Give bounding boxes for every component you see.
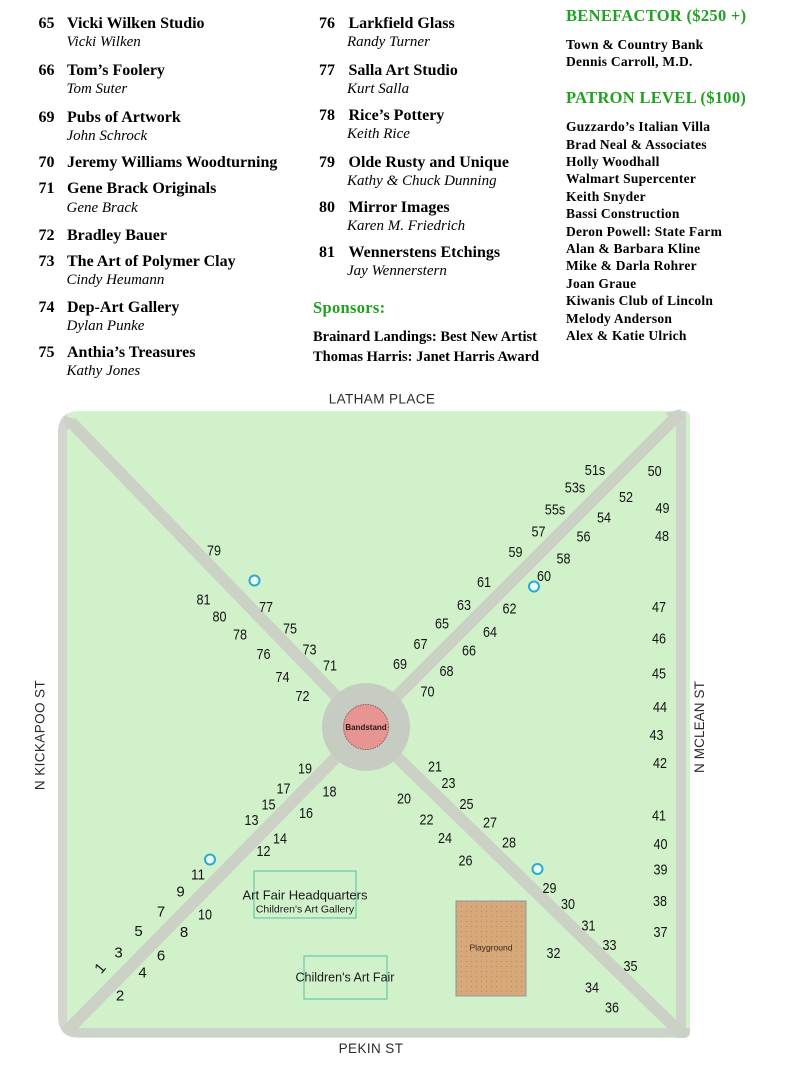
svg-text:51s: 51s xyxy=(585,462,606,479)
svg-text:21: 21 xyxy=(428,759,442,776)
svg-text:40: 40 xyxy=(654,836,668,853)
svg-text:12: 12 xyxy=(257,843,271,860)
svg-text:73: 73 xyxy=(303,642,317,659)
svg-text:49: 49 xyxy=(656,500,670,517)
svg-text:72: 72 xyxy=(296,688,310,705)
svg-text:6: 6 xyxy=(157,948,165,965)
svg-text:35: 35 xyxy=(624,958,638,975)
svg-text:22: 22 xyxy=(420,812,434,829)
svg-text:Bandstand: Bandstand xyxy=(345,723,386,732)
svg-text:53s: 53s xyxy=(565,480,586,497)
svg-text:38: 38 xyxy=(653,893,667,910)
svg-text:N KICKAPOO ST: N KICKAPOO ST xyxy=(33,680,48,790)
svg-text:9: 9 xyxy=(176,884,184,901)
svg-text:17: 17 xyxy=(277,781,291,798)
svg-text:28: 28 xyxy=(502,835,516,852)
svg-text:Art Fair Headquarters: Art Fair Headquarters xyxy=(243,888,368,903)
svg-text:55s: 55s xyxy=(545,502,566,519)
svg-text:79: 79 xyxy=(207,543,221,560)
svg-text:5: 5 xyxy=(134,923,142,940)
svg-text:36: 36 xyxy=(605,1000,619,1017)
svg-text:62: 62 xyxy=(503,601,517,618)
svg-text:43: 43 xyxy=(650,727,664,744)
svg-text:16: 16 xyxy=(299,805,313,822)
svg-text:24: 24 xyxy=(438,830,452,847)
svg-text:7: 7 xyxy=(157,904,165,921)
svg-text:39: 39 xyxy=(654,862,668,879)
svg-text:71: 71 xyxy=(323,658,337,675)
svg-text:Playground: Playground xyxy=(469,943,512,953)
svg-text:44: 44 xyxy=(653,699,667,716)
svg-text:N MCLEAN ST: N MCLEAN ST xyxy=(692,681,707,773)
svg-text:70: 70 xyxy=(421,684,435,701)
svg-text:2: 2 xyxy=(116,988,124,1005)
svg-text:PEKIN ST: PEKIN ST xyxy=(339,1041,404,1056)
svg-text:59: 59 xyxy=(509,544,523,561)
svg-text:29: 29 xyxy=(543,880,557,897)
svg-text:34: 34 xyxy=(585,980,599,997)
svg-text:52: 52 xyxy=(619,489,633,506)
svg-text:Children's Art Fair: Children's Art Fair xyxy=(296,971,395,985)
svg-text:46: 46 xyxy=(652,631,666,648)
svg-text:LATHAM PLACE: LATHAM PLACE xyxy=(329,392,436,407)
svg-text:32: 32 xyxy=(547,945,561,962)
svg-text:60: 60 xyxy=(537,568,551,585)
svg-text:26: 26 xyxy=(459,853,473,870)
svg-text:18: 18 xyxy=(323,784,337,801)
svg-text:23: 23 xyxy=(442,775,456,792)
svg-text:25: 25 xyxy=(460,796,474,813)
svg-text:61: 61 xyxy=(477,574,491,591)
svg-text:75: 75 xyxy=(283,621,297,638)
svg-text:19: 19 xyxy=(298,761,312,778)
svg-text:30: 30 xyxy=(561,896,575,913)
svg-text:45: 45 xyxy=(652,666,666,683)
svg-text:76: 76 xyxy=(257,646,271,663)
svg-text:81: 81 xyxy=(197,592,211,609)
svg-text:64: 64 xyxy=(483,624,497,641)
svg-text:47: 47 xyxy=(652,599,666,616)
svg-text:66: 66 xyxy=(462,643,476,660)
svg-text:15: 15 xyxy=(262,797,276,814)
svg-text:Children's Art Gallery: Children's Art Gallery xyxy=(256,904,355,916)
svg-text:14: 14 xyxy=(273,831,287,848)
svg-text:57: 57 xyxy=(532,524,546,541)
svg-text:74: 74 xyxy=(276,669,290,686)
svg-text:65: 65 xyxy=(435,616,449,633)
svg-text:56: 56 xyxy=(577,529,591,546)
svg-text:78: 78 xyxy=(233,627,247,644)
svg-text:58: 58 xyxy=(557,551,571,568)
svg-text:33: 33 xyxy=(603,937,617,954)
svg-text:8: 8 xyxy=(180,924,188,941)
svg-text:42: 42 xyxy=(653,755,667,772)
svg-text:77: 77 xyxy=(259,599,273,616)
svg-text:10: 10 xyxy=(198,907,212,924)
svg-text:67: 67 xyxy=(414,636,428,653)
svg-text:48: 48 xyxy=(655,528,669,545)
svg-text:50: 50 xyxy=(648,463,662,480)
svg-text:13: 13 xyxy=(245,812,259,829)
svg-text:68: 68 xyxy=(440,663,454,680)
svg-text:37: 37 xyxy=(654,924,668,941)
svg-text:63: 63 xyxy=(457,597,471,614)
svg-text:11: 11 xyxy=(191,867,205,884)
svg-text:69: 69 xyxy=(393,656,407,673)
svg-text:3: 3 xyxy=(114,945,122,962)
svg-text:41: 41 xyxy=(652,808,666,825)
svg-text:54: 54 xyxy=(597,510,611,527)
svg-text:80: 80 xyxy=(213,609,227,626)
svg-text:4: 4 xyxy=(138,965,146,982)
svg-text:27: 27 xyxy=(483,815,497,832)
svg-text:31: 31 xyxy=(582,918,596,935)
svg-text:20: 20 xyxy=(397,791,411,808)
